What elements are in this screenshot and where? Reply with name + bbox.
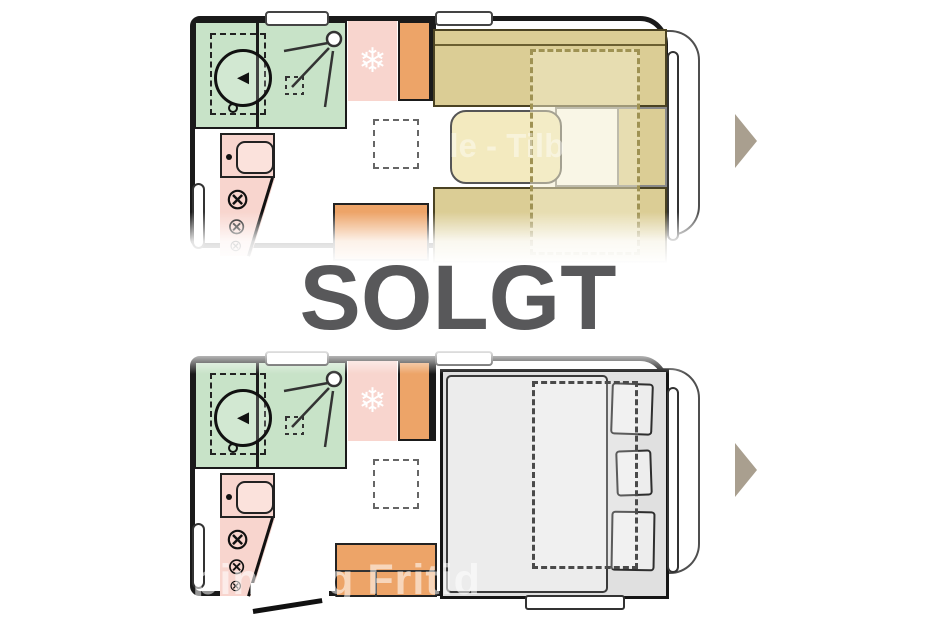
fridge-area: ❄ <box>348 21 397 101</box>
bench-seat-line <box>337 570 435 572</box>
listing-image-stage: ◄ ❄ ⊗ ⊗ ⊗ <box>0 0 951 630</box>
entry-step <box>525 595 625 610</box>
shower-icon <box>272 365 346 465</box>
stove-burner-icon: ⊗ <box>225 525 250 555</box>
kitchen-sink-unit <box>220 473 275 518</box>
bed-section-outline <box>532 381 638 569</box>
open-door-line <box>253 598 323 614</box>
roof-hatch-icon <box>265 11 329 26</box>
next-arrow-icon[interactable] <box>735 443 757 497</box>
snowflake-icon: ❄ <box>358 41 387 81</box>
stove-burner-icon: ⊗ <box>229 579 242 595</box>
toilet-arrow-icon: ◄ <box>233 67 253 90</box>
sold-label: SOLGT <box>0 252 916 344</box>
faucet-icon <box>226 154 232 160</box>
floorplan-image-night-layout[interactable]: ◄ ❄ ⊗ ⊗ <box>190 356 668 596</box>
bench-backrest-line <box>435 44 665 46</box>
bathroom-area: ◄ <box>194 361 347 469</box>
bench-seat-line <box>375 570 377 597</box>
toilet-icon: ◄ <box>214 49 272 107</box>
toilet-flush-icon <box>228 103 238 113</box>
side-bench-cabinet <box>335 543 437 597</box>
toilet-icon: ◄ <box>214 389 272 447</box>
stove-burner-icon: ⊗ <box>225 185 250 215</box>
next-arrow-icon[interactable] <box>735 114 757 168</box>
toilet-arrow-icon: ◄ <box>233 407 253 430</box>
snowflake-icon: ❄ <box>358 381 387 421</box>
sink-icon <box>236 141 274 174</box>
shower-icon <box>272 25 346 125</box>
bathroom-area: ◄ <box>194 21 347 129</box>
faucet-icon <box>226 494 232 500</box>
window-left-wall <box>192 523 205 589</box>
floor-marking-outline <box>373 119 419 169</box>
roof-hatch-icon <box>435 11 493 26</box>
entry-door-opening <box>251 583 329 599</box>
window-front-wall <box>667 387 679 573</box>
floor-marking-outline <box>373 459 419 509</box>
kitchen-sink-unit <box>220 133 275 178</box>
toilet-flush-icon <box>228 443 238 453</box>
sink-icon <box>236 481 274 514</box>
stove-burner-icon: ⊗ <box>227 555 246 578</box>
wardrobe-cabinet <box>398 21 431 101</box>
